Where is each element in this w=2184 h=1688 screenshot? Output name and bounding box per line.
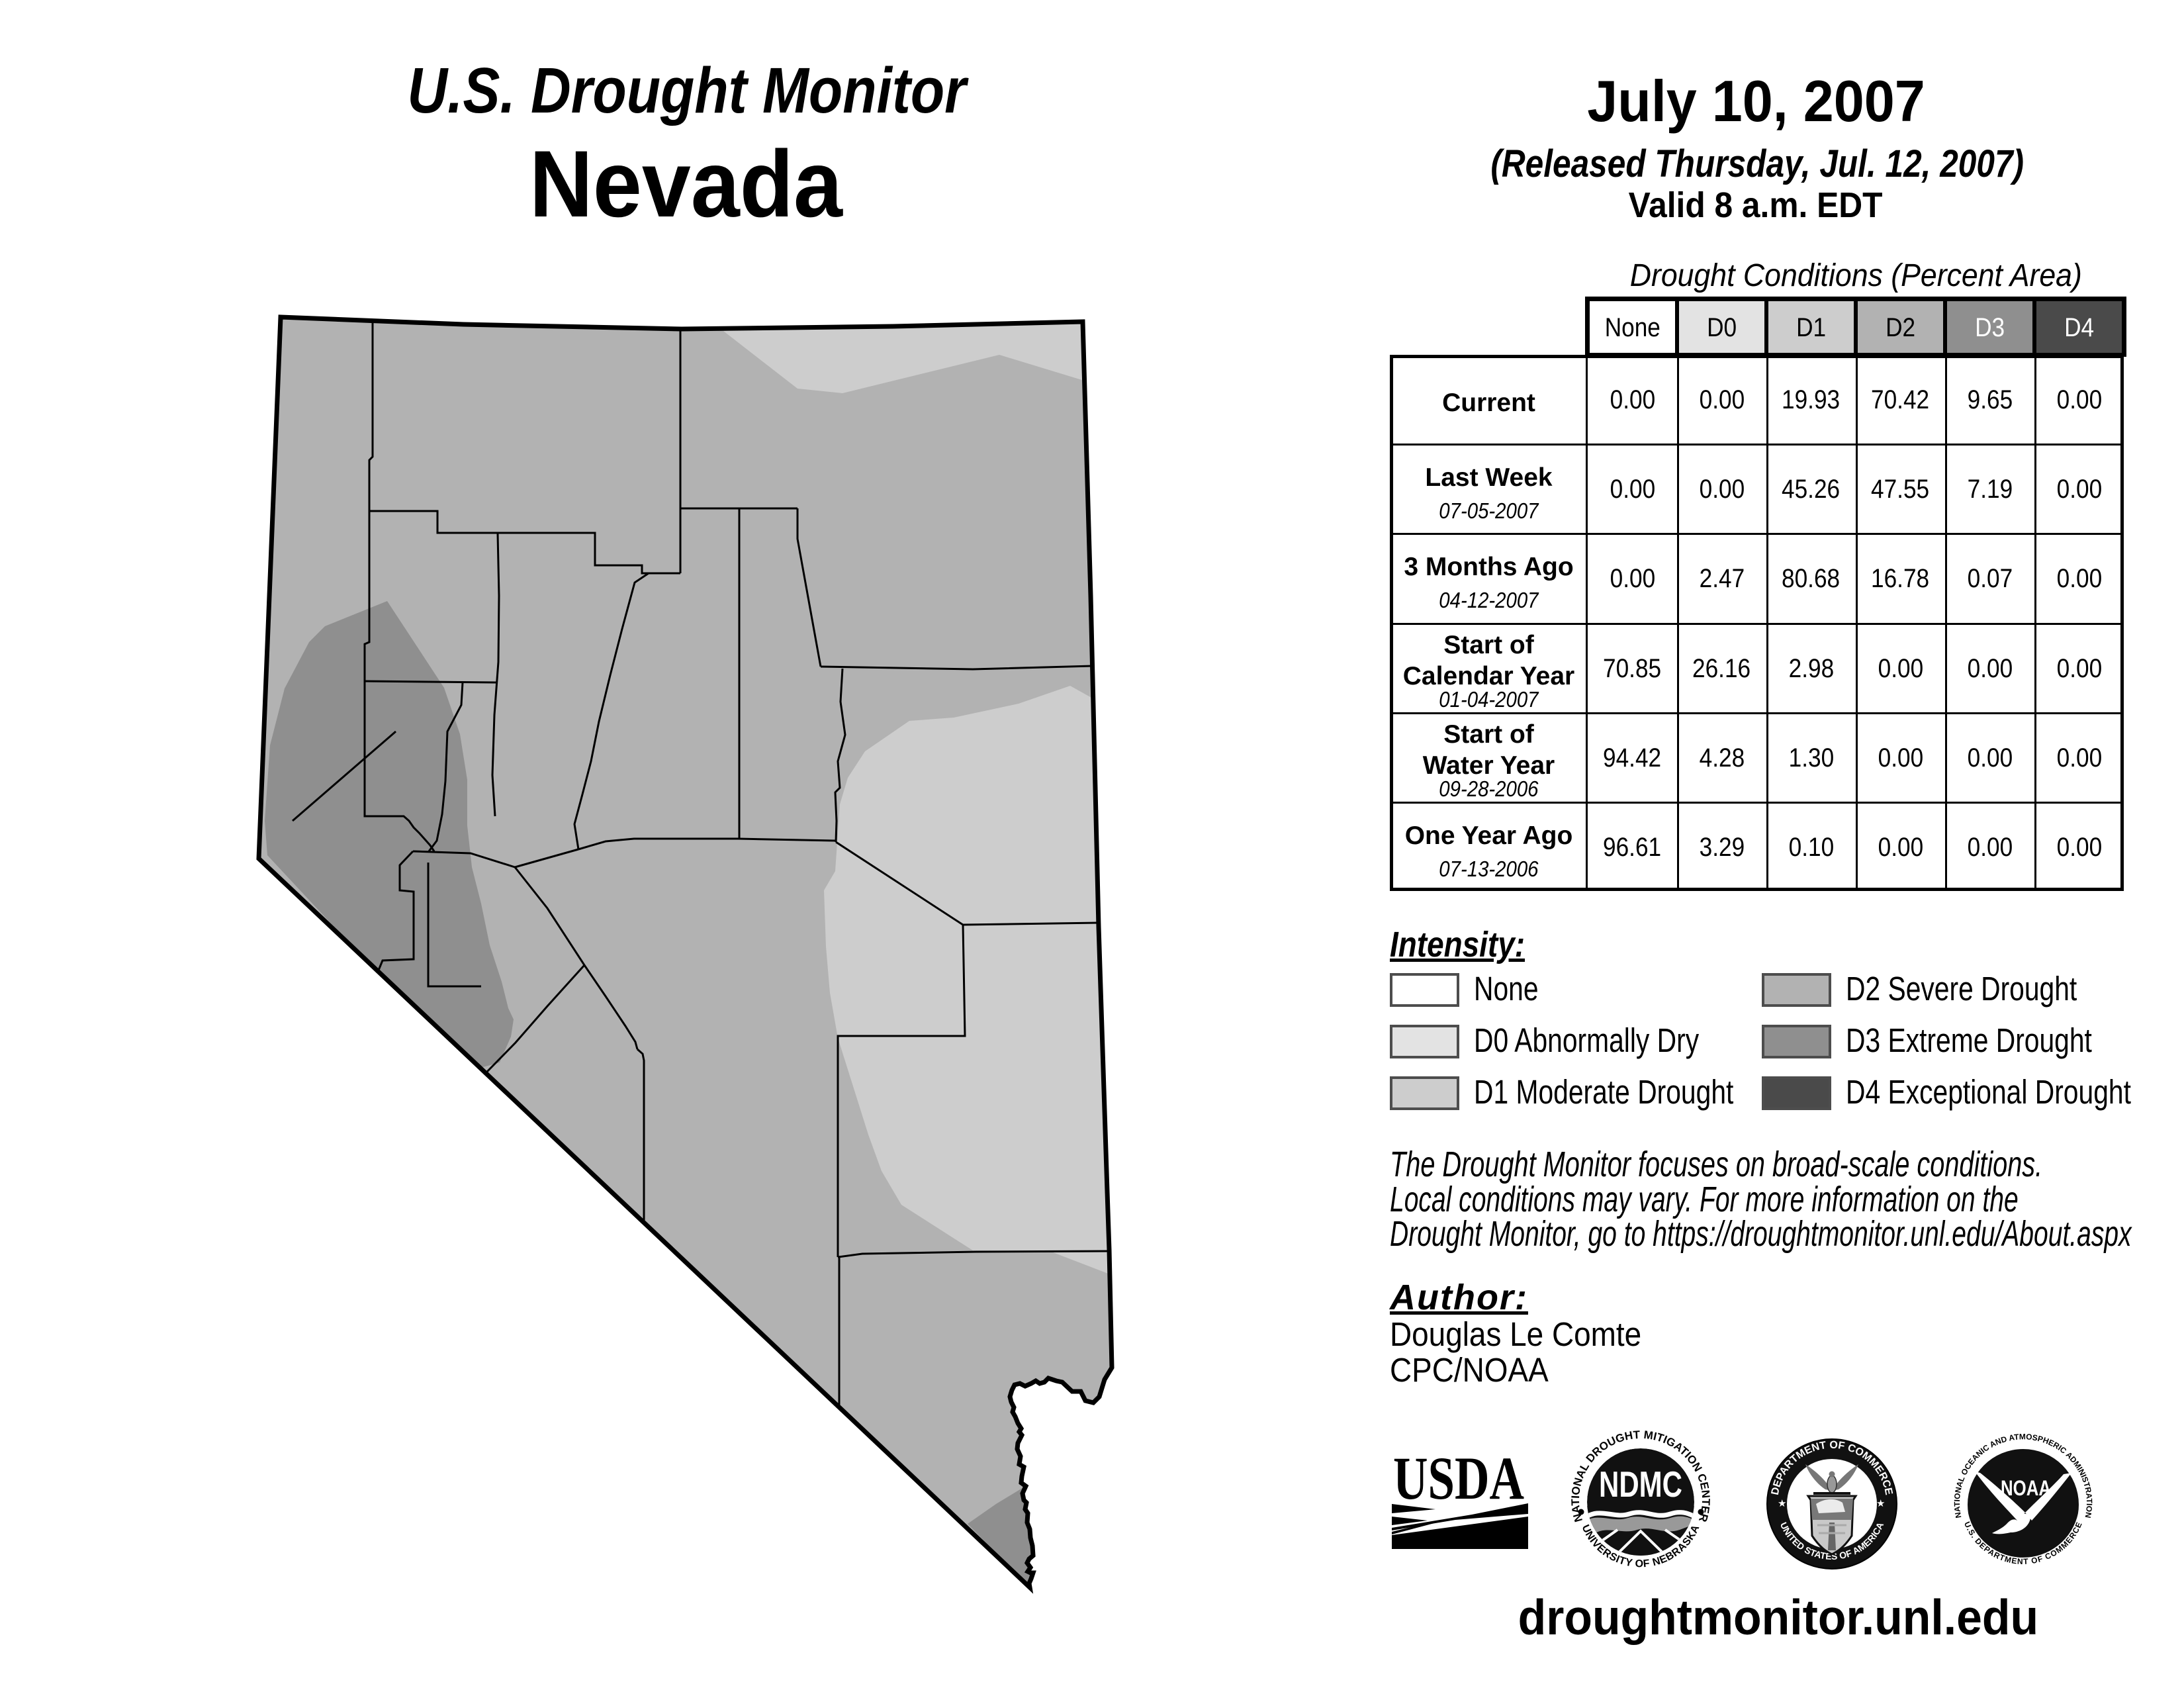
svg-text:USDA: USDA: [1393, 1456, 1524, 1512]
svg-text:NDMC: NDMC: [1599, 1464, 1682, 1505]
svg-text:★: ★: [1778, 1498, 1786, 1509]
svg-text:★: ★: [1876, 1498, 1885, 1509]
svg-text:NOAA: NOAA: [2001, 1476, 2051, 1500]
